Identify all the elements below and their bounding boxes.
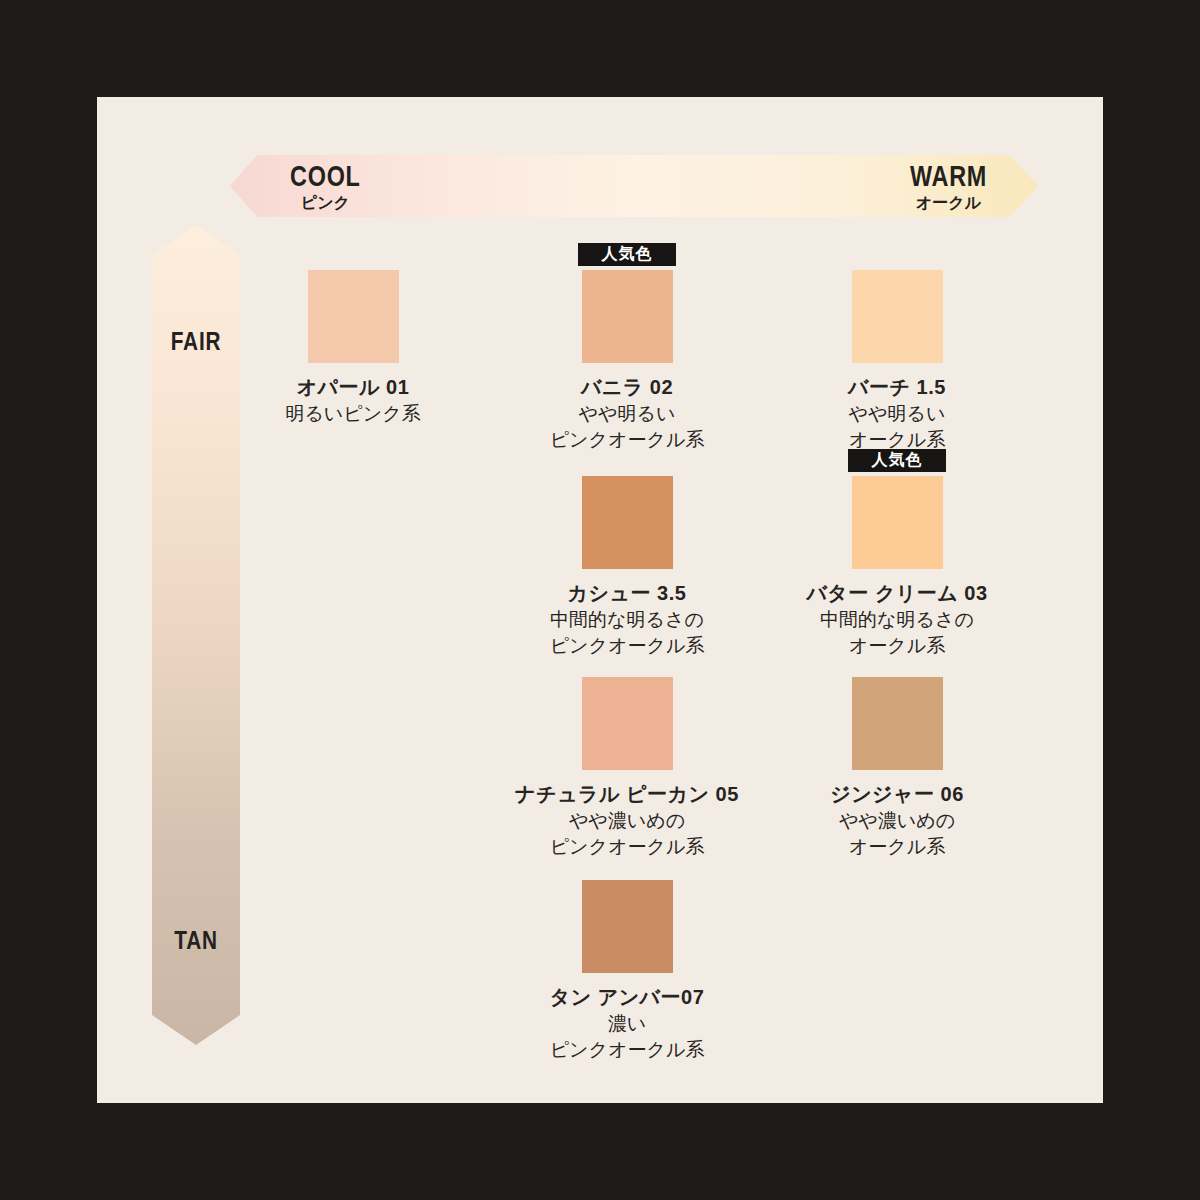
tan-label: TAN [161, 927, 231, 953]
shade-name: タン アンバー07 [497, 984, 757, 1010]
cool-label-block: COOL ピンク [280, 161, 371, 211]
shade-description-line: やや明るい [497, 401, 757, 427]
warm-sublabel: オークル [899, 195, 998, 211]
shade-description: やや明るいオークル系 [767, 401, 1027, 453]
shade-description: 濃いピンクオークル系 [497, 1011, 757, 1063]
shade-cell: カシュー 3.5 中間的な明るさのピンクオークル系 [497, 476, 757, 659]
shade-description-line: ピンクオークル系 [497, 834, 757, 860]
shade-swatch-wrap [308, 270, 399, 363]
shade-description-line: 明るいピンク系 [223, 401, 483, 427]
shade-description: 中間的な明るさのピンクオークル系 [497, 607, 757, 659]
shade-description-line: 濃い [497, 1011, 757, 1037]
cool-warm-gradient-arrow: COOL ピンク WARM オークル [230, 155, 1038, 217]
shade-cell: 人気色 バニラ 02 やや明るいピンクオークル系 [497, 270, 757, 453]
shade-description-line: オークル系 [767, 834, 1027, 860]
shade-description-line: 中間的な明るさの [497, 607, 757, 633]
shade-cell: タン アンバー07 濃いピンクオークル系 [497, 880, 757, 1063]
shade-cell: 人気色 バター クリーム 03 中間的な明るさのオークル系 [767, 476, 1027, 659]
shade-description-line: やや濃いめの [497, 808, 757, 834]
shade-swatch [852, 476, 943, 569]
warm-label-block: WARM オークル [899, 161, 998, 211]
cool-sublabel: ピンク [280, 195, 371, 211]
shade-description: やや明るいピンクオークル系 [497, 401, 757, 453]
shade-name: バーチ 1.5 [767, 374, 1027, 400]
shade-name: バター クリーム 03 [767, 580, 1027, 606]
shade-swatch-wrap [582, 677, 673, 770]
shade-name: オパール 01 [223, 374, 483, 400]
popular-badge: 人気色 [578, 243, 676, 266]
shade-cell: オパール 01 明るいピンク系 [223, 270, 483, 427]
shade-swatch [582, 476, 673, 569]
shade-description-line: やや明るい [767, 401, 1027, 427]
popular-badge-label: 人気色 [602, 244, 653, 265]
shade-swatch [852, 270, 943, 363]
shade-cell: バーチ 1.5 やや明るいオークル系 [767, 270, 1027, 453]
shade-name: バニラ 02 [497, 374, 757, 400]
shade-description-line: やや濃いめの [767, 808, 1027, 834]
shade-swatch-wrap [852, 677, 943, 770]
shade-description-line: ピンクオークル系 [497, 633, 757, 659]
shade-name: カシュー 3.5 [497, 580, 757, 606]
shade-swatch [582, 677, 673, 770]
shade-swatch-wrap [582, 880, 673, 973]
popular-badge-label: 人気色 [872, 450, 923, 471]
shade-swatch-wrap [852, 270, 943, 363]
shade-cell: ジンジャー 06 やや濃いめのオークル系 [767, 677, 1027, 860]
shade-description-line: オークル系 [767, 633, 1027, 659]
shade-description: やや濃いめのピンクオークル系 [497, 808, 757, 860]
shade-name: ジンジャー 06 [767, 781, 1027, 807]
shade-swatch-wrap [582, 476, 673, 569]
shade-swatch [582, 880, 673, 973]
shade-swatch [582, 270, 673, 363]
warm-label: WARM [910, 161, 987, 191]
shade-description: やや濃いめのオークル系 [767, 808, 1027, 860]
shade-description-line: ピンクオークル系 [497, 427, 757, 453]
shade-name: ナチュラル ピーカン 05 [497, 781, 757, 807]
shade-swatch-wrap: 人気色 [582, 270, 673, 363]
shade-chart-panel: COOL ピンク WARM オークル FAIR TAN オパール 01 明るいピ… [97, 97, 1103, 1103]
shade-description: 中間的な明るさのオークル系 [767, 607, 1027, 659]
shade-swatch [308, 270, 399, 363]
shade-description-line: 中間的な明るさの [767, 607, 1027, 633]
fair-label: FAIR [161, 328, 231, 354]
cool-label: COOL [290, 161, 361, 191]
shade-description: 明るいピンク系 [223, 401, 483, 427]
shade-description-line: ピンクオークル系 [497, 1037, 757, 1063]
shade-swatch-wrap: 人気色 [852, 476, 943, 569]
popular-badge: 人気色 [848, 449, 946, 472]
shade-swatch [852, 677, 943, 770]
shade-cell: ナチュラル ピーカン 05 やや濃いめのピンクオークル系 [497, 677, 757, 860]
